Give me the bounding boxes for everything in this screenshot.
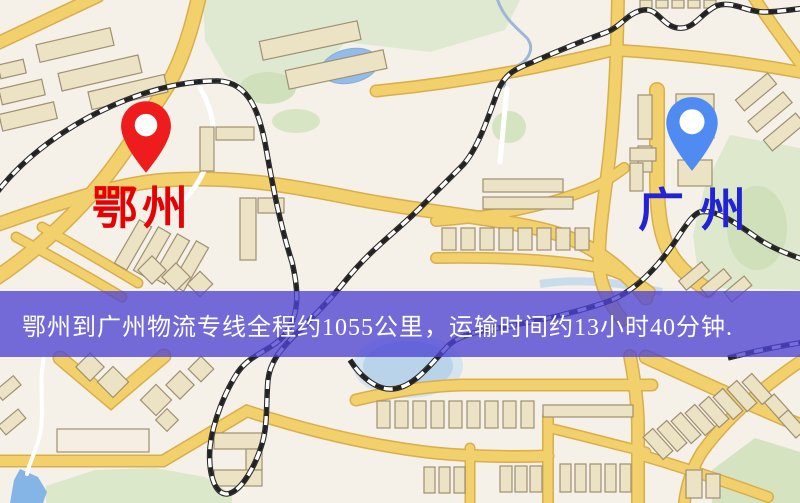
map-canvas[interactable] (0, 0, 800, 503)
origin-city-label: 鄂州 (92, 172, 192, 238)
route-info-text: 鄂州到广州物流专线全程约1055公里，运输时间约13小时40分钟. (0, 307, 733, 342)
base-map (0, 0, 800, 503)
origin-pin-icon[interactable] (120, 100, 172, 174)
destination-pin-icon[interactable] (664, 96, 720, 172)
route-info-banner: 鄂州到广州物流专线全程约1055公里，运输时间约13小时40分钟. (0, 291, 800, 357)
destination-city-label: 广州 (638, 174, 762, 240)
